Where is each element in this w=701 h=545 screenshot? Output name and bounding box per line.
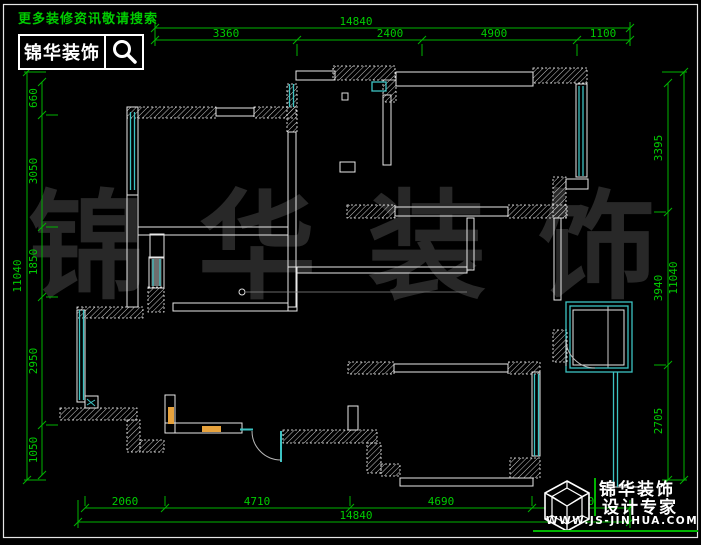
footer-logo[interactable]: 锦华装饰 设计专家 WWW.JS-JINHUA.COM	[530, 474, 701, 540]
dim-left-seg4: 1050	[27, 437, 40, 464]
dim-left-seg1: 3050	[27, 158, 40, 185]
walls-hatched	[60, 66, 587, 478]
dimensions-left: 11040 660 3050 1850 2950 1050	[11, 68, 58, 484]
image-border	[4, 5, 698, 538]
dim-bottom-seg0: 2060	[112, 495, 139, 508]
wall-line	[395, 207, 508, 216]
window-frame	[127, 107, 138, 195]
dim-right-seg0: 3395	[652, 135, 665, 162]
wall-segment	[508, 205, 567, 218]
wall-segment	[333, 66, 395, 80]
wall-line	[288, 132, 296, 307]
dim-left-seg3: 2950	[27, 348, 40, 375]
wall-line	[400, 478, 533, 486]
dim-top-seg3: 1100	[590, 27, 617, 40]
dim-top-overall: 14840	[339, 15, 372, 28]
magnifier-icon	[109, 38, 139, 66]
wall-segment	[347, 205, 395, 218]
dim-top-seg1: 2400	[377, 27, 404, 40]
wall-line	[127, 195, 138, 307]
dimensions-right: 11040 3395 3940 2705	[652, 68, 688, 484]
wall-line	[566, 179, 588, 189]
wall-line	[396, 72, 533, 86]
brand-search-box[interactable]: 锦华装饰	[18, 34, 144, 70]
wall-segment	[148, 287, 164, 312]
dim-right-overall: 11040	[667, 261, 680, 294]
wall-line	[173, 303, 288, 311]
balcony-inner	[573, 310, 624, 365]
brand-logo-text: 锦华装饰	[20, 36, 104, 68]
wall-line	[297, 267, 467, 273]
wall-segment	[127, 420, 140, 452]
balcony-glazing	[566, 302, 632, 372]
dim-bottom-overall: 14840	[339, 509, 372, 522]
search-hint-text: 更多装修资讯敬请搜索	[18, 8, 158, 27]
wall-segment	[533, 68, 587, 83]
dim-left-seg2: 1850	[27, 249, 40, 276]
counter-appliance	[202, 426, 221, 432]
balcony-glazing	[570, 306, 628, 368]
column	[348, 406, 358, 430]
wall-segment	[127, 107, 216, 118]
fixture-mark	[87, 399, 95, 406]
dim-bottom-seg2: 4690	[428, 495, 455, 508]
counter-appliance	[168, 407, 174, 424]
floorplan-drawing: 14840 3360 2400 4900 1100 2060 4710 4690…	[0, 0, 701, 545]
wall-segment	[553, 330, 567, 362]
wall-segment	[348, 362, 394, 374]
wall-segment	[381, 464, 400, 476]
fixtures	[87, 93, 467, 432]
wall-segment	[60, 408, 137, 420]
wall-line	[150, 234, 164, 258]
switch-symbol	[342, 93, 348, 100]
wall-line	[467, 218, 474, 270]
light-symbol	[239, 289, 245, 295]
dim-top-seg2: 4900	[481, 27, 508, 40]
wall-line	[554, 218, 561, 300]
dimensions-top: 14840 3360 2400 4900 1100	[151, 15, 634, 56]
footer-website-text: WWW.JS-JINHUA.COM	[546, 515, 698, 527]
door-swing-arc	[252, 431, 281, 460]
dim-left-overall: 11040	[11, 259, 24, 292]
wall-line	[340, 162, 355, 172]
wall-segment	[77, 307, 143, 318]
wall-line	[296, 71, 335, 80]
dim-right-seg1: 3940	[652, 275, 665, 302]
logo-divider	[594, 478, 596, 516]
wall-segment	[367, 443, 381, 473]
window-frame	[576, 84, 587, 177]
floorplan-image: 锦华装饰 14840 3360 2400 4900 1100	[0, 0, 701, 545]
dim-top-seg0: 3360	[213, 27, 240, 40]
wall-line	[394, 364, 508, 372]
wall-segment	[283, 430, 377, 443]
search-button[interactable]	[104, 36, 142, 68]
wall-line	[383, 95, 391, 165]
dim-left-seg0: 660	[27, 88, 40, 108]
wall-segment	[287, 84, 297, 132]
logo-underline	[533, 530, 698, 532]
dim-bottom-seg1: 4710	[244, 495, 271, 508]
wall-segment	[140, 440, 164, 452]
windows	[80, 82, 633, 487]
wall-line	[216, 108, 254, 116]
dim-right-seg2: 2705	[652, 408, 665, 435]
